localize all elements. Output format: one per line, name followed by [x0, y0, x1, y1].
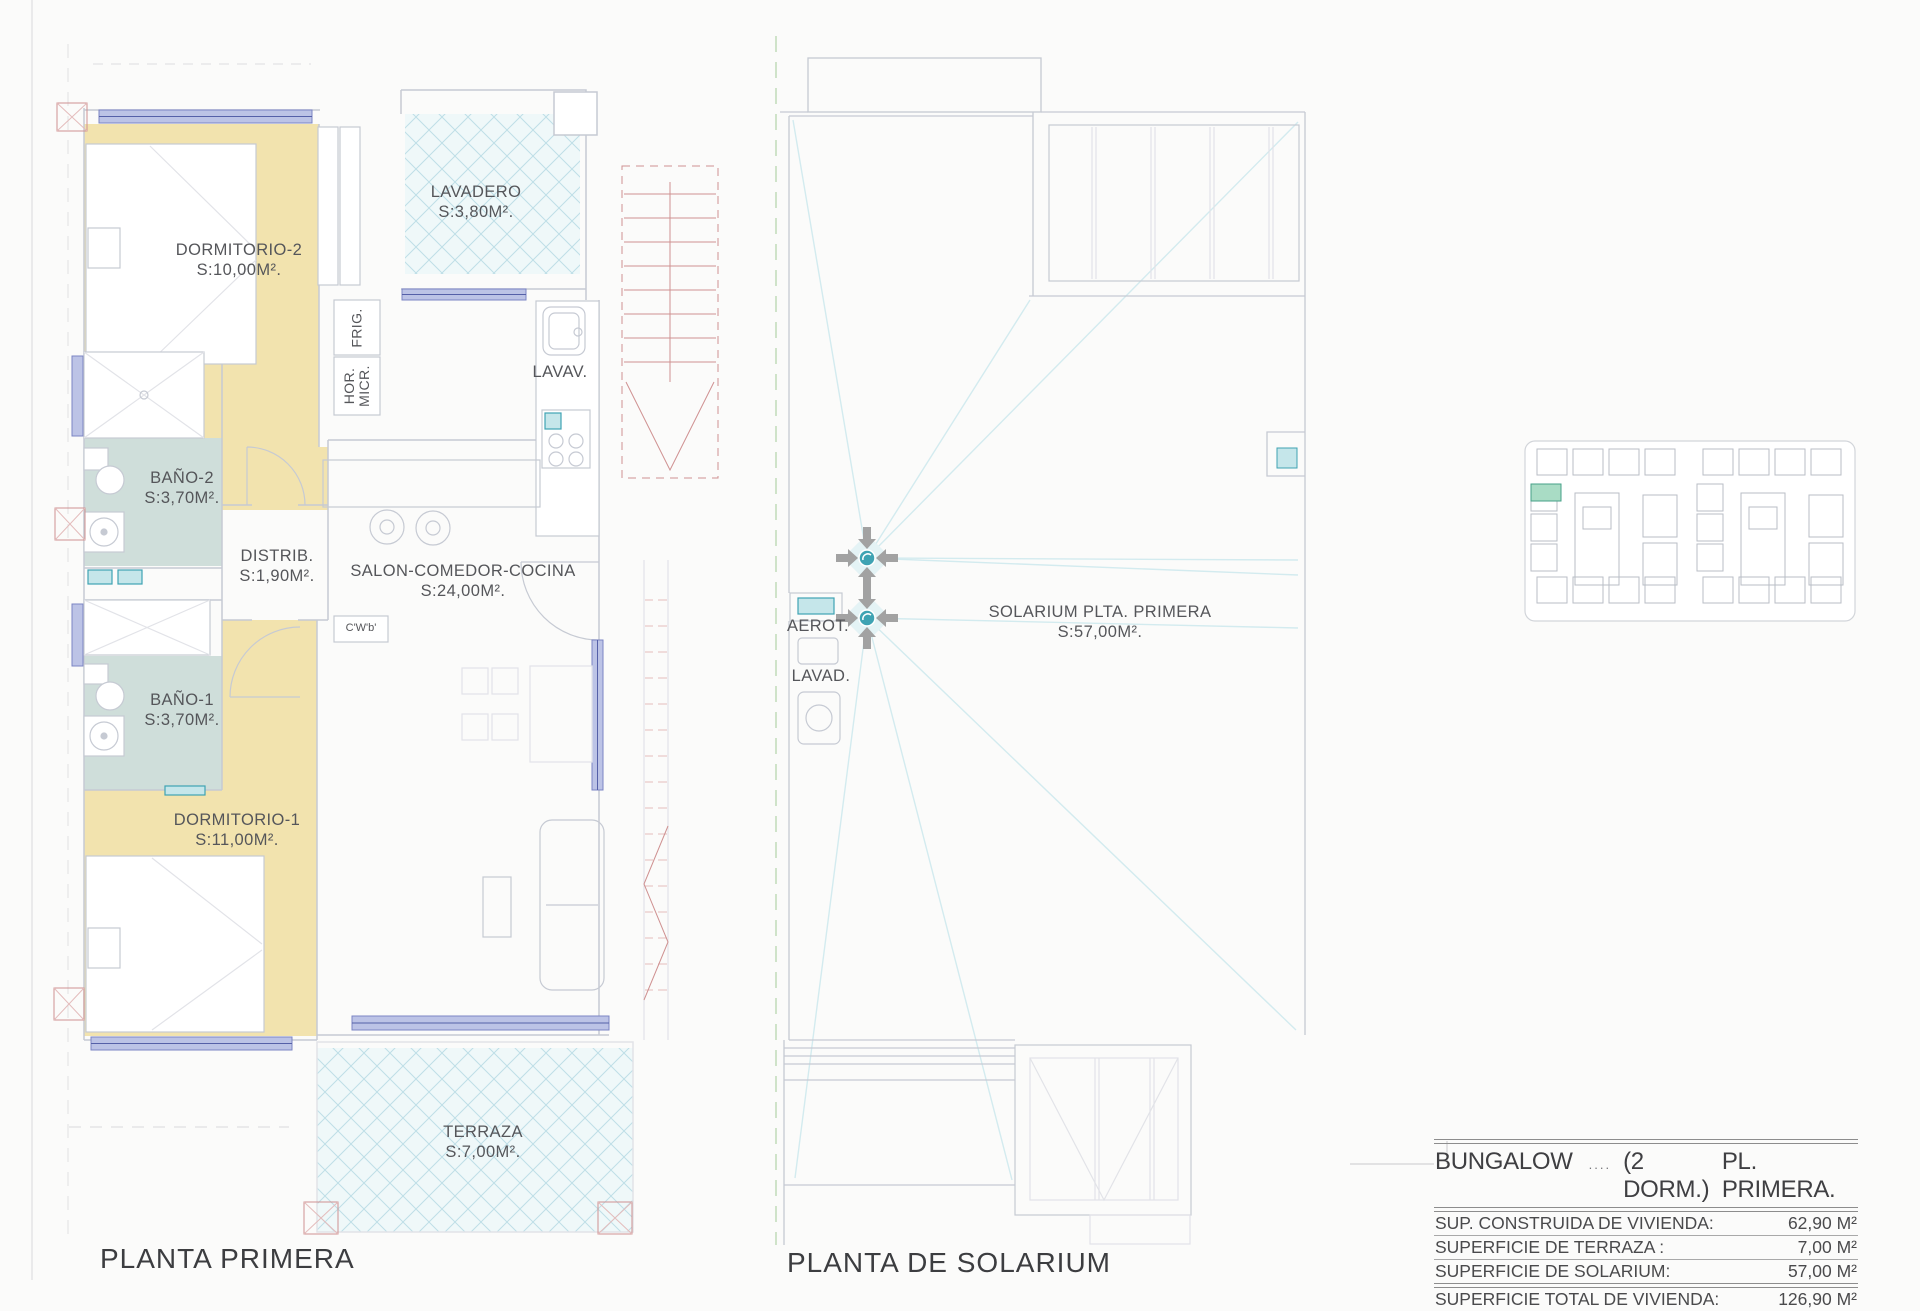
- room-area: S:24,00M².: [350, 581, 575, 601]
- room-name: BAÑO-1: [144, 690, 219, 710]
- roof-slope-lines: [793, 120, 1298, 1180]
- table-title-floor: PL. PRIMERA.: [1722, 1148, 1857, 1204]
- appliance-label: HOR.: [342, 365, 357, 407]
- table-row-label: SUPERFICIE DE TERRAZA :: [1435, 1237, 1664, 1258]
- table-row: SUPERFICIE DE TERRAZA : 7,00 M²: [1434, 1236, 1858, 1259]
- room-area: S:7,00M².: [443, 1142, 523, 1162]
- left-plan-title: PLANTA PRIMERA: [100, 1243, 355, 1275]
- table-row-value: 62,90 M²: [1788, 1213, 1857, 1234]
- highlighted-unit: [1531, 484, 1561, 501]
- room-name: DORMITORIO-2: [176, 240, 302, 260]
- label-lavad: LAVAD.: [792, 666, 851, 686]
- room-label-terraza: TERRAZA S:7,00M².: [443, 1122, 523, 1162]
- table-row: SUP. CONSTRUIDA DE VIVIENDA: 62,90 M²: [1434, 1212, 1858, 1235]
- room-label-dormitorio-1: DORMITORIO-1 S:11,00M².: [174, 810, 300, 850]
- room-area: S:57,00M².: [989, 622, 1212, 642]
- wall-box-label: C'W'b': [346, 622, 377, 634]
- appliance-label: FRIG.: [349, 308, 365, 347]
- table-row-value: 7,00 M²: [1798, 1237, 1857, 1258]
- room-name: SOLARIUM PLTA. PRIMERA: [989, 602, 1212, 622]
- equipment-label: AEROT.: [787, 617, 849, 635]
- room-area: S:3,70M².: [144, 710, 219, 730]
- left-plan: [32, 0, 718, 1280]
- room-area: S:3,70M².: [144, 488, 219, 508]
- room-name: BAÑO-2: [144, 468, 219, 488]
- room-label-bano-1: BAÑO-1 S:3,70M².: [144, 690, 219, 730]
- table-title-dots: ....: [1589, 1157, 1611, 1172]
- table-row-value: 57,00 M²: [1788, 1261, 1857, 1282]
- room-name: DORMITORIO-1: [174, 810, 300, 830]
- site-key-map: [1525, 441, 1855, 621]
- right-plan-title: PLANTA DE SOLARIUM: [787, 1247, 1111, 1279]
- room-label-lavadero: LAVADERO S:3,80M².: [431, 182, 522, 222]
- room-area: S:3,80M².: [431, 202, 522, 222]
- appliance-label: MICR.: [357, 365, 372, 407]
- right-plan-walls: [780, 58, 1305, 1245]
- room-name: SALON-COMEDOR-COCINA: [350, 561, 575, 581]
- label-cwb: C'W'b': [346, 622, 377, 634]
- label-lavav: LAVAV.: [533, 362, 588, 382]
- room-label-distrib: DISTRIB. S:1,90M².: [239, 546, 314, 586]
- room-name: DISTRIB.: [239, 546, 314, 566]
- table-row-label: SUPERFICIE DE SOLARIUM:: [1435, 1261, 1670, 1282]
- table-row: SUPERFICIE TOTAL DE VIVIENDA: 126,90 M²: [1434, 1288, 1858, 1311]
- living-room-furniture: [462, 666, 604, 990]
- skylight-box: [1277, 448, 1297, 468]
- room-area: S:1,90M².: [239, 566, 314, 586]
- bed-dormitorio-1: [86, 856, 264, 1032]
- room-area: S:11,00M².: [174, 830, 300, 850]
- room-name: LAVADERO: [431, 182, 522, 202]
- summary-table: BUNGALOW .... (2 DORM.) PL. PRIMERA. SUP…: [1434, 1139, 1858, 1311]
- floorplan-canvas: DORMITORIO-2 S:10,00M². LAVADERO S:3,80M…: [0, 0, 1920, 1280]
- table-title-row: BUNGALOW .... (2 DORM.) PL. PRIMERA.: [1434, 1144, 1858, 1207]
- label-frig: FRIG.: [350, 308, 365, 347]
- table-title-dorm: (2 DORM.): [1623, 1148, 1722, 1204]
- table-row-label: SUPERFICIE TOTAL DE VIVIENDA:: [1435, 1289, 1719, 1310]
- appliance-label: LAVAV.: [533, 363, 588, 381]
- room-label-salon: SALON-COMEDOR-COCINA S:24,00M².: [350, 561, 575, 601]
- table-title-name: BUNGALOW: [1435, 1148, 1573, 1176]
- room-name: TERRAZA: [443, 1122, 523, 1142]
- room-area: S:10,00M².: [176, 260, 302, 280]
- solarium-stairwell-top: [1049, 125, 1299, 281]
- table-leader-lines: [1350, 1141, 1447, 1164]
- equipment-label: LAVAD.: [792, 667, 851, 685]
- room-label-bano-2: BAÑO-2 S:3,70M².: [144, 468, 219, 508]
- staircase-upper: [622, 166, 718, 478]
- floorplan-linework: [0, 0, 1920, 1280]
- table-row-value: 126,90 M²: [1778, 1289, 1857, 1310]
- label-hor-micr: HOR. MICR.: [342, 365, 372, 407]
- table-row-label: SUP. CONSTRUIDA DE VIVIENDA:: [1435, 1213, 1714, 1234]
- staircase-lower: [644, 560, 668, 1040]
- label-aerot: AEROT.: [787, 616, 849, 636]
- solarium-stairwell-bottom: [1015, 1045, 1191, 1244]
- room-label-solarium: SOLARIUM PLTA. PRIMERA S:57,00M².: [989, 602, 1212, 642]
- room-label-dormitorio-2: DORMITORIO-2 S:10,00M².: [176, 240, 302, 280]
